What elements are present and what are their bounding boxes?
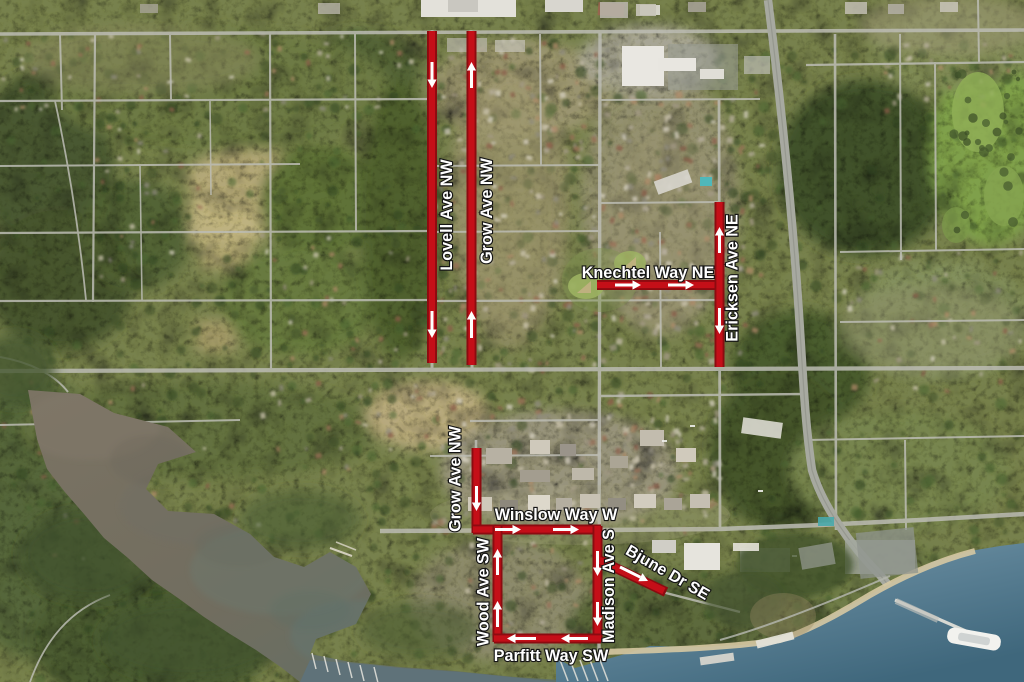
svg-text:Madison Ave S: Madison Ave S (600, 529, 618, 643)
svg-text:Grow Ave NW: Grow Ave NW (447, 425, 465, 532)
svg-text:Lovell Ave NW: Lovell Ave NW (438, 159, 456, 271)
svg-text:Wood Ave SW: Wood Ave SW (475, 537, 493, 646)
svg-text:Grow Ave NW: Grow Ave NW (478, 157, 496, 264)
svg-text:Parfitt Way SW: Parfitt Way SW (494, 647, 609, 665)
svg-text:Ericksen Ave NE: Ericksen Ave NE (724, 214, 742, 342)
svg-text:Winslow Way W: Winslow Way W (495, 506, 618, 524)
svg-text:Knechtel Way NE: Knechtel Way NE (582, 264, 715, 282)
